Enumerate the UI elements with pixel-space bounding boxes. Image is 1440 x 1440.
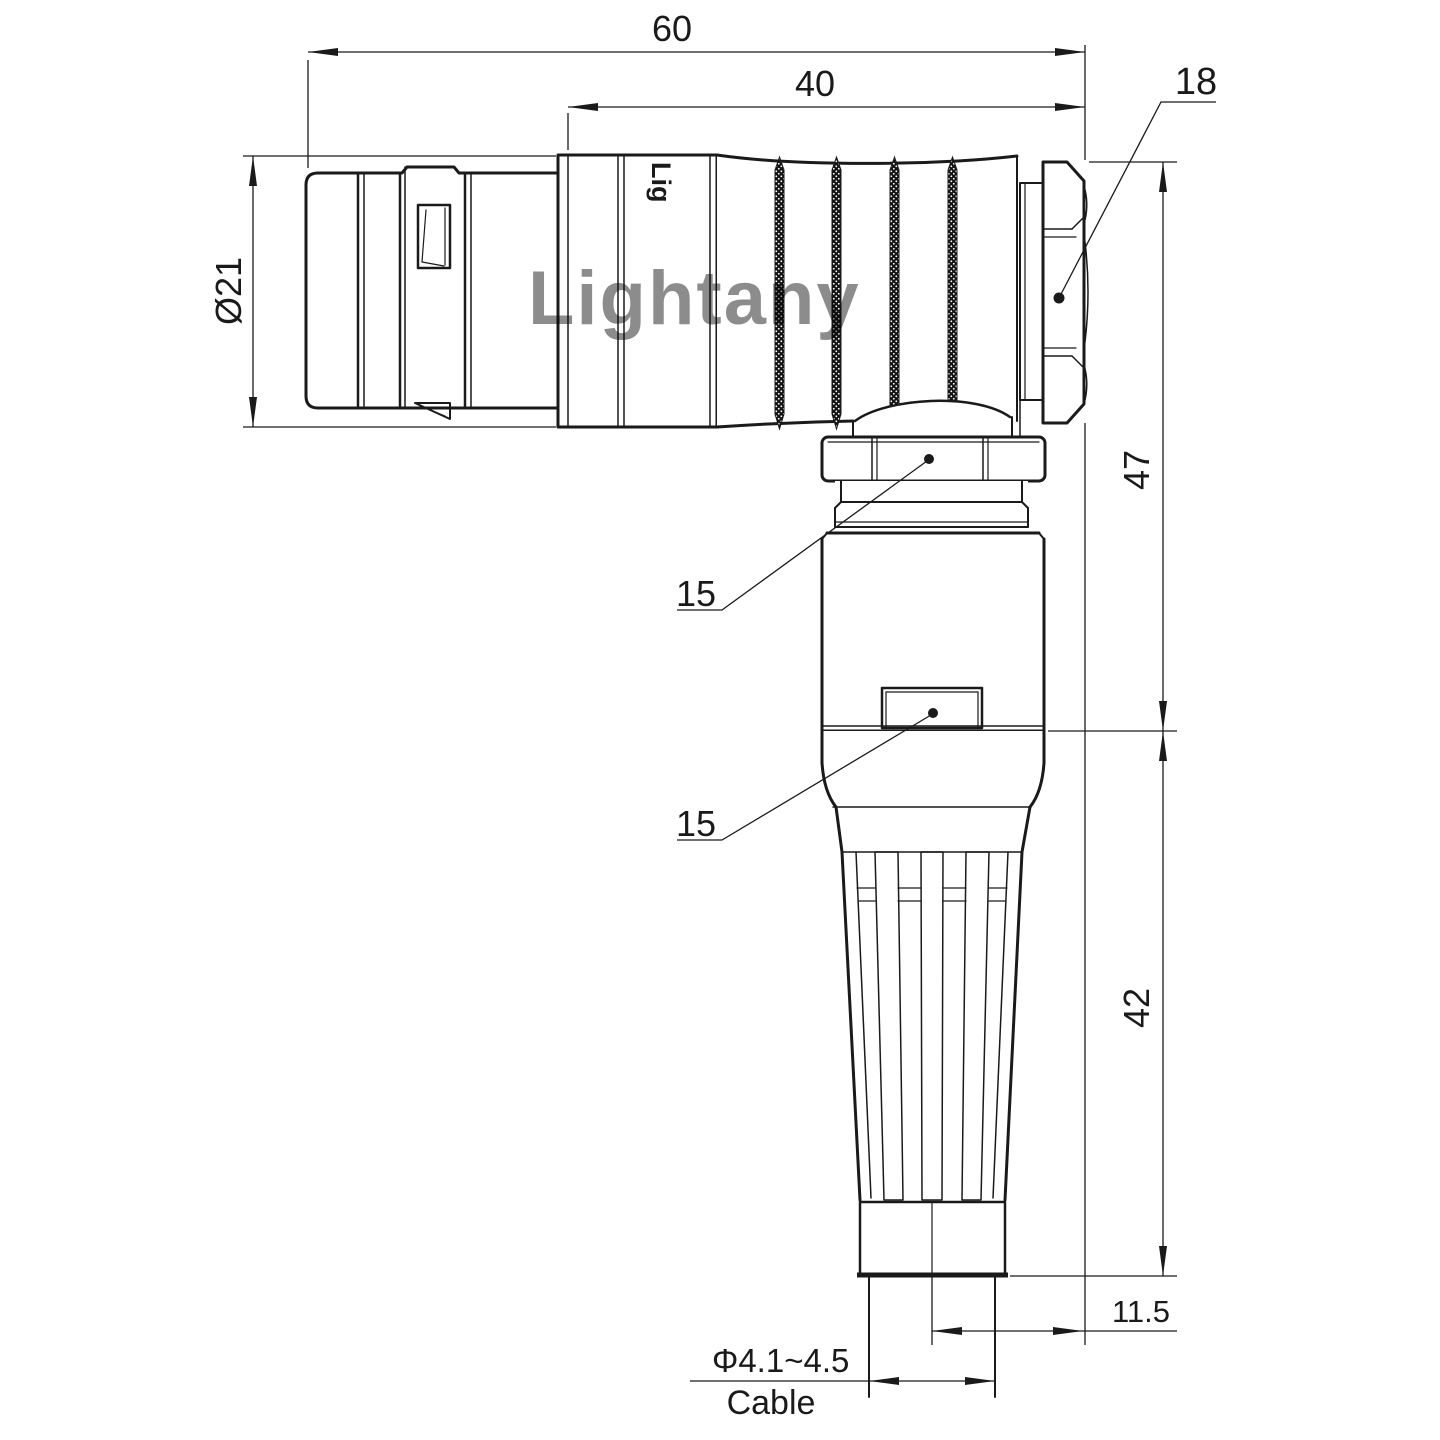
svg-text:Φ4.1~4.5: Φ4.1~4.5 <box>712 1342 849 1379</box>
svg-text:11.5: 11.5 <box>1112 1294 1170 1329</box>
svg-text:42: 42 <box>1116 988 1157 1028</box>
main-body <box>822 533 1044 731</box>
dim-axis-offset: 11.5 <box>932 1294 1177 1335</box>
dim-overall-length: 60 <box>308 8 1085 56</box>
svg-text:15: 15 <box>676 573 716 614</box>
cable-caption: Cable <box>727 1384 816 1422</box>
watermark-text: Lightany <box>528 256 861 341</box>
boot-end-cap <box>857 1202 1008 1275</box>
boot-web-lines <box>857 888 1007 901</box>
svg-text:40: 40 <box>795 63 835 104</box>
technical-drawing: Lig <box>0 0 1440 1440</box>
brand-stamp-text: Lig <box>646 162 676 203</box>
svg-text:47: 47 <box>1116 450 1157 490</box>
connector-vertical-body <box>822 437 1045 1397</box>
nut-step <box>1020 183 1043 436</box>
keyway-window <box>418 205 450 268</box>
dim-cable-diameter: Φ4.1~4.5 Cable <box>690 1342 995 1422</box>
front-shell <box>306 167 558 419</box>
coupling-nut-band <box>822 437 1045 481</box>
dim-rear-length: 40 <box>568 63 1085 111</box>
svg-text:Ø21: Ø21 <box>208 257 249 325</box>
hex-nut <box>1043 162 1088 423</box>
dim-side-height: 47 <box>1116 162 1167 731</box>
strain-relief-boot <box>842 852 1022 1200</box>
release-notch <box>415 403 450 419</box>
svg-text:60: 60 <box>652 8 692 49</box>
dim-lower-height: 42 <box>1116 731 1167 1276</box>
dimension-annotations: 60 40 Ø21 18 47 <box>208 8 1217 1422</box>
dim-shell-diameter: Ø21 <box>208 156 257 427</box>
svg-text:15: 15 <box>676 803 716 844</box>
svg-text:18: 18 <box>1175 61 1217 103</box>
boot-shoulder <box>822 731 1044 852</box>
dim-hex-nut: 18 <box>1054 61 1218 304</box>
collar-rings <box>835 481 1028 529</box>
